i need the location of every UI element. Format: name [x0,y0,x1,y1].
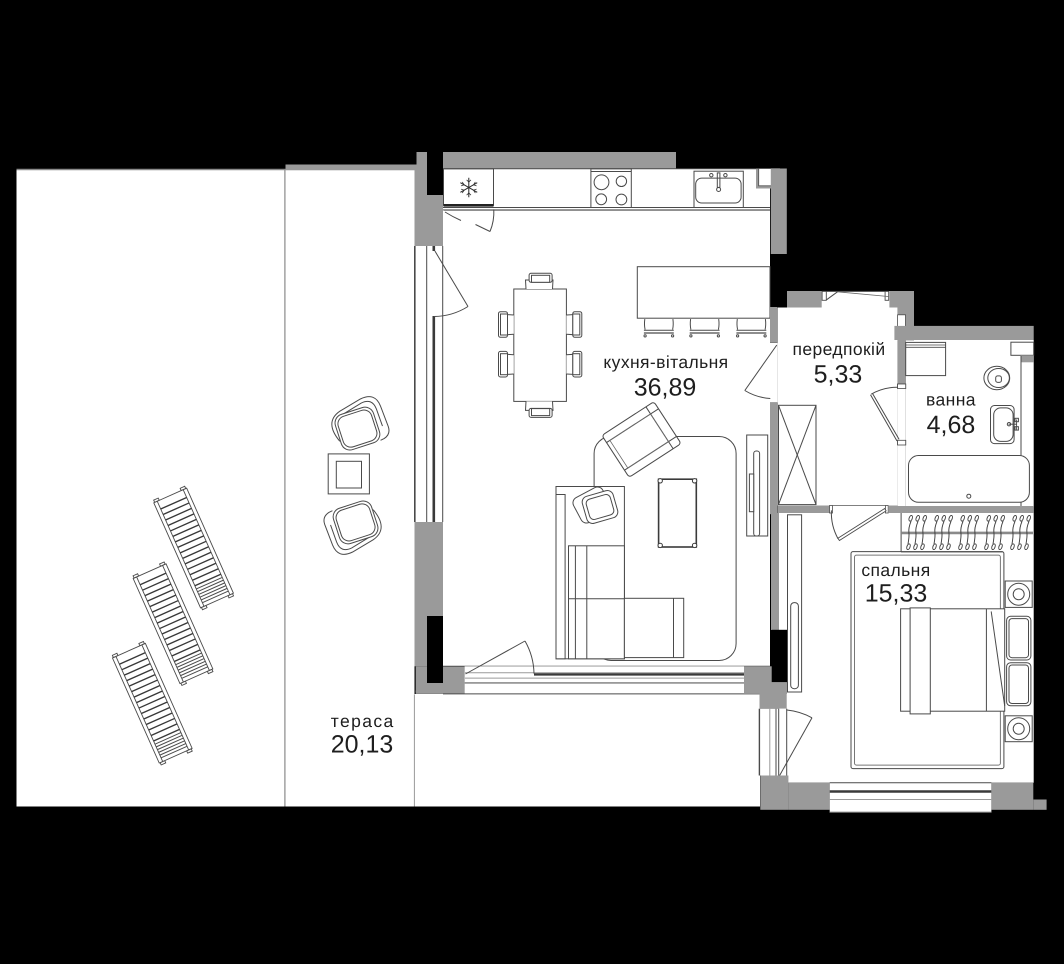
svg-text:ванна: ванна [926,390,976,410]
svg-text:тераса: тераса [331,711,395,731]
svg-text:15,33: 15,33 [865,580,928,608]
svg-text:4,68: 4,68 [927,411,976,439]
svg-text:спальня: спальня [861,560,930,580]
svg-text:передпокій: передпокій [792,339,885,359]
svg-text:5,33: 5,33 [814,361,863,389]
svg-text:36,89: 36,89 [634,374,697,402]
svg-text:20,13: 20,13 [331,731,394,759]
svg-text:кухня-вітальня: кухня-вітальня [603,352,728,372]
